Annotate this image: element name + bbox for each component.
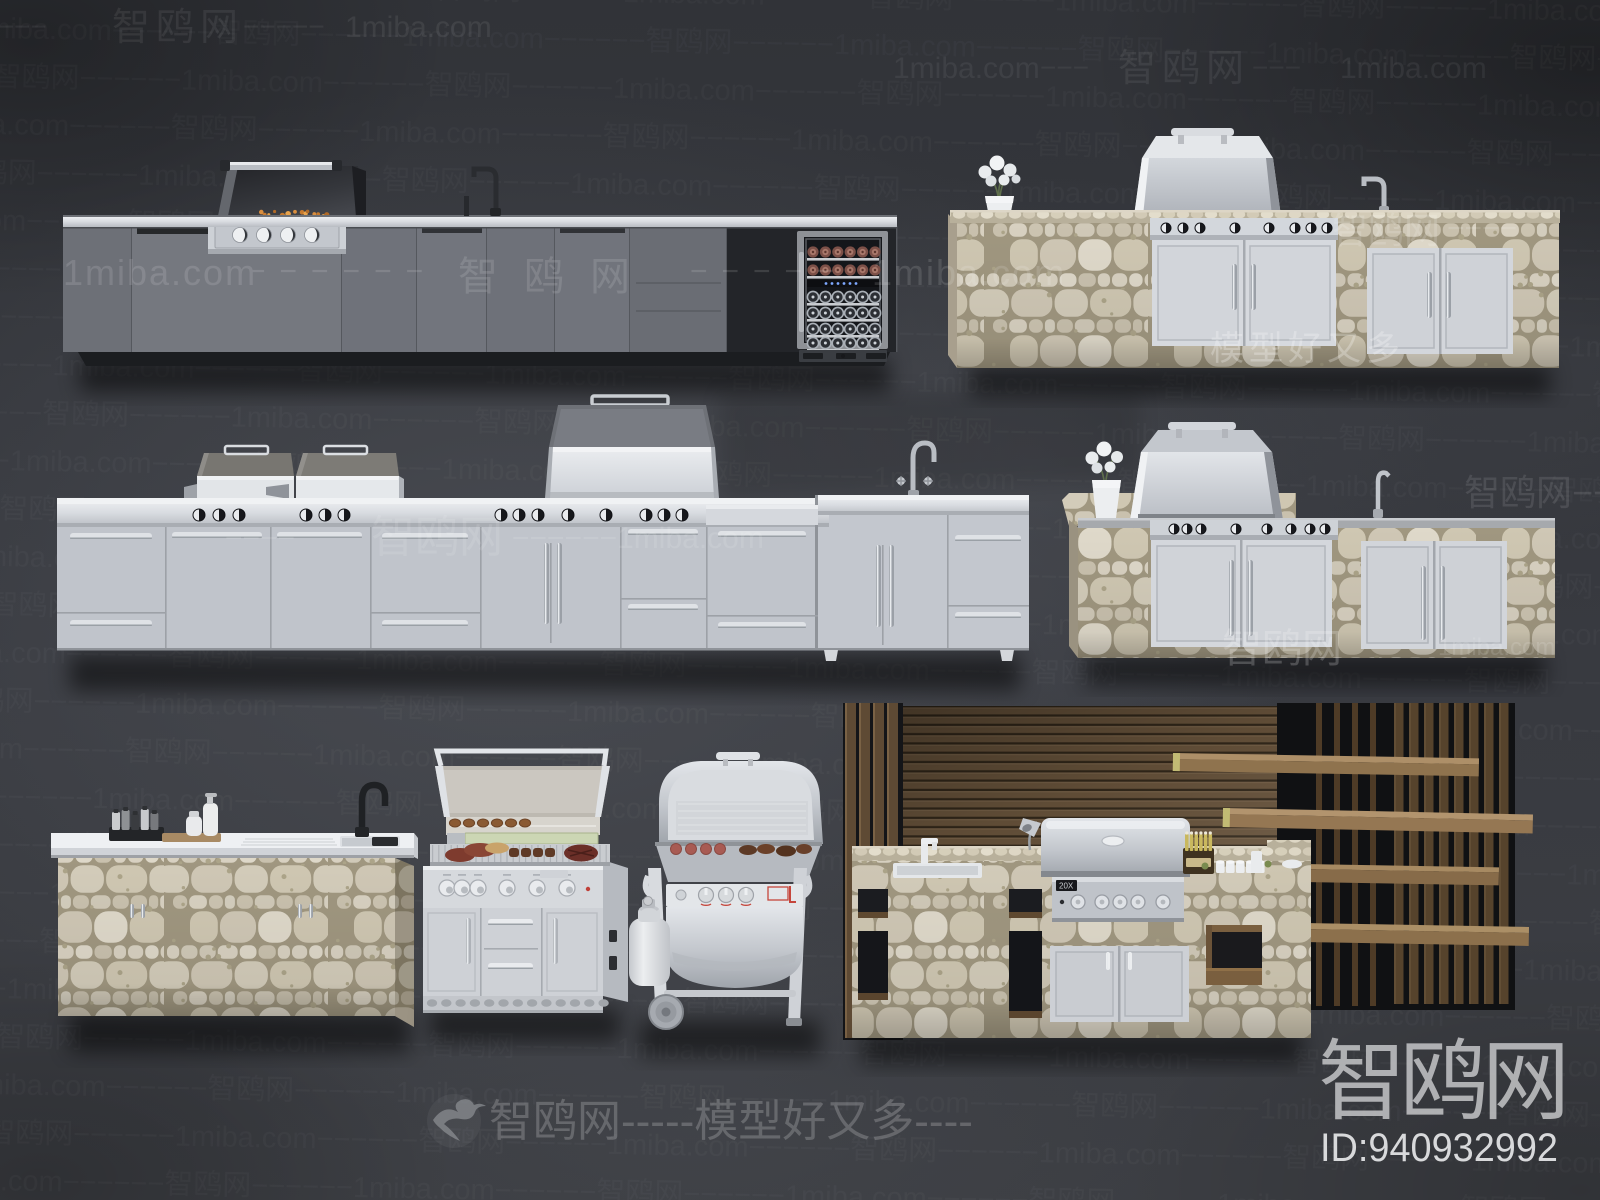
svg-text:1miba.com: 1miba.com <box>1438 634 1555 661</box>
svg-text:1miba.com: 1miba.com <box>345 11 492 44</box>
svg-text:1miba.com: 1miba.com <box>1340 52 1487 85</box>
svg-text:智鸥网-----模型好又多----: 智鸥网-----模型好又多---- <box>489 1097 973 1146</box>
svg-text:−−−−−: −−−−− <box>0 11 47 42</box>
svg-text:−−−−−: −−−−− <box>690 255 848 288</box>
svg-text:ID:940932992: ID:940932992 <box>1320 1126 1558 1170</box>
svg-text:−−−−: −−−− <box>225 522 295 555</box>
svg-text:1miba.com: 1miba.com <box>893 52 1040 85</box>
svg-text:1miba.com: 1miba.com <box>872 252 1066 293</box>
svg-text:智鸥网: 智鸥网 <box>1222 627 1342 671</box>
svg-text:−−−: −−− <box>1252 52 1301 83</box>
svg-text:1miba.com: 1miba.com <box>63 252 257 293</box>
svg-text:模型好又多: 模型好又多 <box>1210 330 1405 368</box>
svg-text:智鸥网: 智鸥网 <box>1118 48 1250 90</box>
svg-text:智鸥网: 智鸥网 <box>1318 1032 1564 1131</box>
svg-text:−−−−: −−−− <box>1447 212 1517 245</box>
svg-text:−−−: −−− <box>1040 52 1089 83</box>
svg-text:20X: 20X <box>1059 882 1074 891</box>
svg-text:智鸥网: 智鸥网 <box>458 255 656 299</box>
svg-text:−−−−−−: −−−−−− <box>248 255 437 288</box>
svg-text:−−−−−: −−−−− <box>243 11 325 42</box>
svg-text:智鸥网: 智鸥网 <box>112 7 244 49</box>
svg-text:智鸥网: 智鸥网 <box>1332 210 1440 251</box>
svg-text:智鸥网−−: 智鸥网−− <box>1464 472 1600 513</box>
svg-text:智鸥网: 智鸥网 <box>371 513 503 562</box>
svg-text:−−−−−−1miba.com: −−−−−−1miba.com <box>512 522 764 555</box>
